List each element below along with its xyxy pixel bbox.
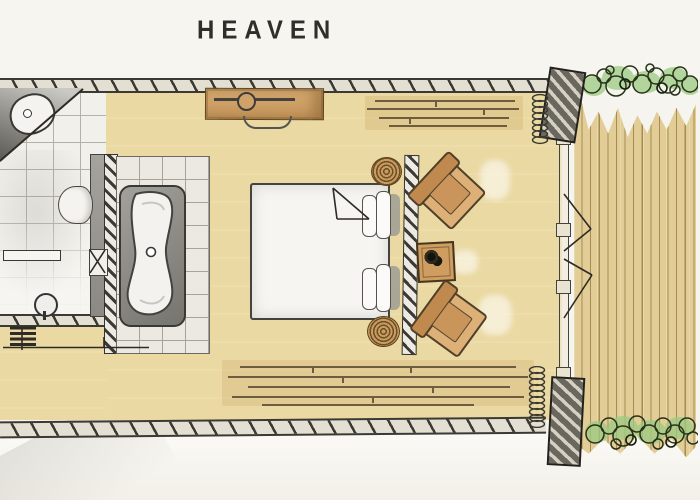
decor-swirl-bottom xyxy=(367,316,400,347)
plank-detail-top xyxy=(365,96,523,130)
curtain-coil-bottom xyxy=(528,366,546,428)
door-jamb xyxy=(556,223,571,237)
table-plant xyxy=(423,249,444,269)
plank-line xyxy=(240,366,516,368)
glass-door-track xyxy=(559,133,569,379)
plank-joint xyxy=(483,108,485,115)
plan-title: HEAVEN xyxy=(197,16,337,46)
toilet xyxy=(58,186,93,224)
towel-shelf xyxy=(3,250,61,261)
plank-line xyxy=(375,100,515,102)
pillow xyxy=(376,191,391,239)
floor-plan-sketch: HEAVEN xyxy=(0,0,700,500)
bathroom-wash xyxy=(0,150,92,300)
wall-column-box xyxy=(89,249,108,276)
paper-highlight xyxy=(452,250,478,274)
plank-line xyxy=(367,108,519,110)
dresser-handle xyxy=(243,116,292,129)
plank-joint xyxy=(372,396,374,403)
wall-basin-stem xyxy=(43,311,46,320)
dresser-knob xyxy=(237,92,256,111)
plank-line xyxy=(248,386,510,388)
plank-joint xyxy=(409,117,411,124)
plank-line xyxy=(262,404,474,406)
plank-joint xyxy=(342,376,344,383)
plank-joint xyxy=(432,386,434,393)
corridor-floor xyxy=(0,323,106,420)
plank-line xyxy=(389,125,507,127)
plank-line xyxy=(379,117,509,119)
pillow xyxy=(362,268,377,310)
plank-rug-bottom xyxy=(222,360,534,406)
hedge-top xyxy=(580,56,698,108)
plank-joint xyxy=(435,100,437,107)
plank-joint xyxy=(410,366,412,373)
plank-joint xyxy=(312,366,314,373)
door-jamb xyxy=(556,280,571,294)
plank-line xyxy=(228,376,528,378)
wall-basin xyxy=(34,293,58,317)
hedge-bottom xyxy=(583,400,698,458)
decor-swirl-top xyxy=(371,157,402,186)
wall-block-bottom-right xyxy=(547,376,586,467)
basin-drain xyxy=(23,109,32,118)
plank-line xyxy=(232,396,524,398)
pillow xyxy=(376,264,391,312)
pillow xyxy=(362,195,377,237)
curtain-coil-top xyxy=(531,93,549,145)
bathtub xyxy=(122,190,179,318)
